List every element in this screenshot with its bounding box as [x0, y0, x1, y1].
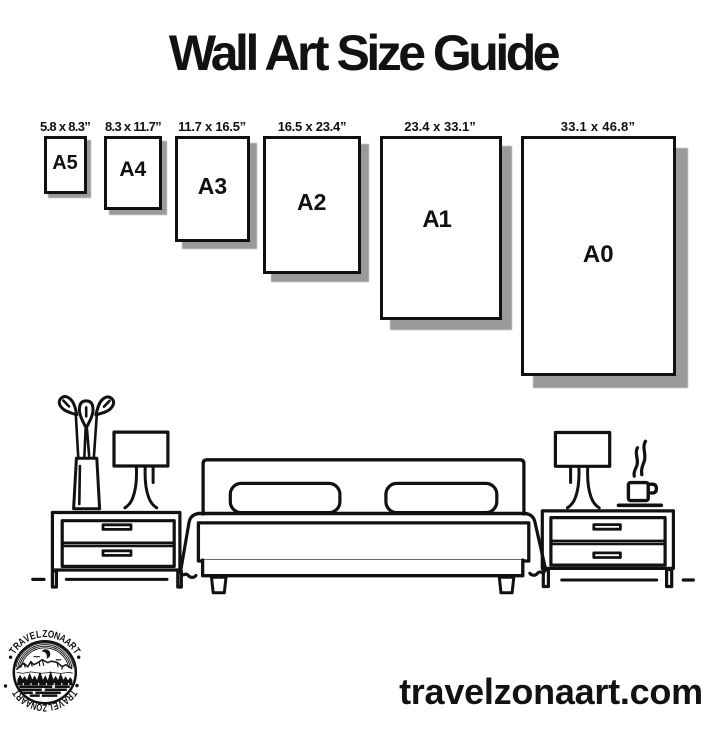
svg-text:L: L — [35, 628, 42, 640]
